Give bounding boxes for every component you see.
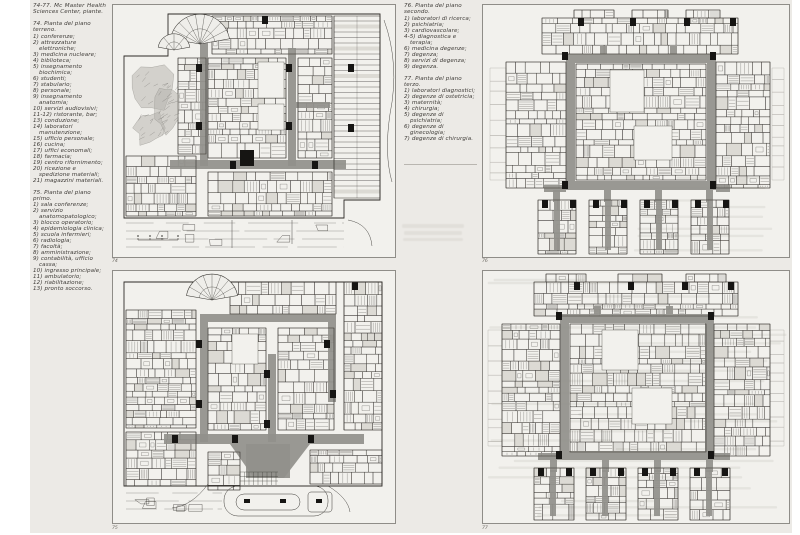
caption-section-76: 76. Pianta del piano secondo. 1) laborat… [404,3,477,70]
floor-plan-76-drawing [482,4,790,258]
caption-item: 9) insegnamento anatomia; [33,94,106,106]
caption-header: 74-77. Mc Master Health Sciences Center,… [33,3,106,15]
caption-item: 2) servizio anatomopatologico; [33,208,106,220]
caption-item: 11-12) ristorante, bar; [33,112,106,118]
caption-item: 6) medicina degenze; [404,46,477,52]
caption-item-list: 1) laboratori diagnostici;2) degenze di … [404,88,477,142]
caption-item: 2) attrezzature elettroniche; [33,40,106,52]
showthrough-text-ghost [404,231,462,235]
caption-item: 20) ricezione e spedizione materiali; [33,166,106,178]
figure-number-74: 74 [112,259,118,264]
showthrough-text-ghost [403,238,463,241]
caption-column-right: 76. Pianta del piano secondo. 1) laborat… [404,3,477,142]
floor-plan-75-figure [112,270,396,524]
caption-section-title: 75. Pianta del piano primo. [33,190,106,202]
caption-section-title: 76. Pianta del piano secondo. [404,3,477,15]
caption-item: 4-5) diagnostica e terapia; [404,34,477,46]
caption-item: 10) servizi audiovisivi; [33,106,106,112]
caption-section-77: 77. Pianta del piano terzo. 1) laborator… [404,76,477,143]
showthrough-text-ghost [402,224,464,228]
caption-item-list: 1) laboratori di ricerca;2) psichiatria;… [404,16,477,70]
caption-item: 5) degenze di psichiatria; [404,112,477,124]
caption-section-title: 74. Pianta del piano terreno. [33,21,106,33]
figure-number-75: 75 [112,526,118,531]
caption-item: 21) magazzini materiali. [33,178,106,184]
caption-column-left: 74-77. Mc Master Health Sciences Center,… [33,3,106,292]
caption-item: 8) servizi di degenza; [404,58,477,64]
caption-section-title: 77. Pianta del piano terzo. [404,76,477,88]
caption-item: 9) degenza. [404,64,477,70]
caption-item: 9) contabilità, ufficio cassa; [33,256,106,268]
caption-item: 6) degenze di ginecologia; [404,124,477,136]
caption-item: 14) laboratori manutenzione; [33,124,106,136]
book-page: 74-77. Mc Master Health Sciences Center,… [30,0,792,533]
caption-section-74: 74. Pianta del piano terreno. 1) confere… [33,21,106,184]
caption-item: 1) laboratori di ricerca; [404,16,477,22]
figure-number-77: 77 [482,526,488,531]
caption-section-75: 75. Pianta del piano primo. 1) sala conf… [33,190,106,293]
caption-item: 7) degenze di chirurgia. [404,136,477,142]
floor-plan-76-figure [482,4,790,258]
caption-item-list: 1) sala conferenze;2) servizio anatomopa… [33,202,106,292]
caption-item: 19) centro rifornimento; [33,160,106,166]
floor-plan-74-figure [112,4,396,258]
floor-plan-75-drawing [112,270,396,524]
figure-number-76: 76 [482,259,488,264]
floor-plan-74-drawing [112,4,396,258]
caption-item-list: 1) conferenze;2) attrezzature elettronic… [33,34,106,184]
caption-item: 13) pronto soccorso. [33,286,106,292]
caption-item: 3) medicina nucleare; [33,52,106,58]
floor-plan-77-figure [482,270,790,524]
floor-plan-77-drawing [482,270,790,524]
column-divider [404,164,477,165]
caption-item: 5) insegnamento biochimica; [33,64,106,76]
